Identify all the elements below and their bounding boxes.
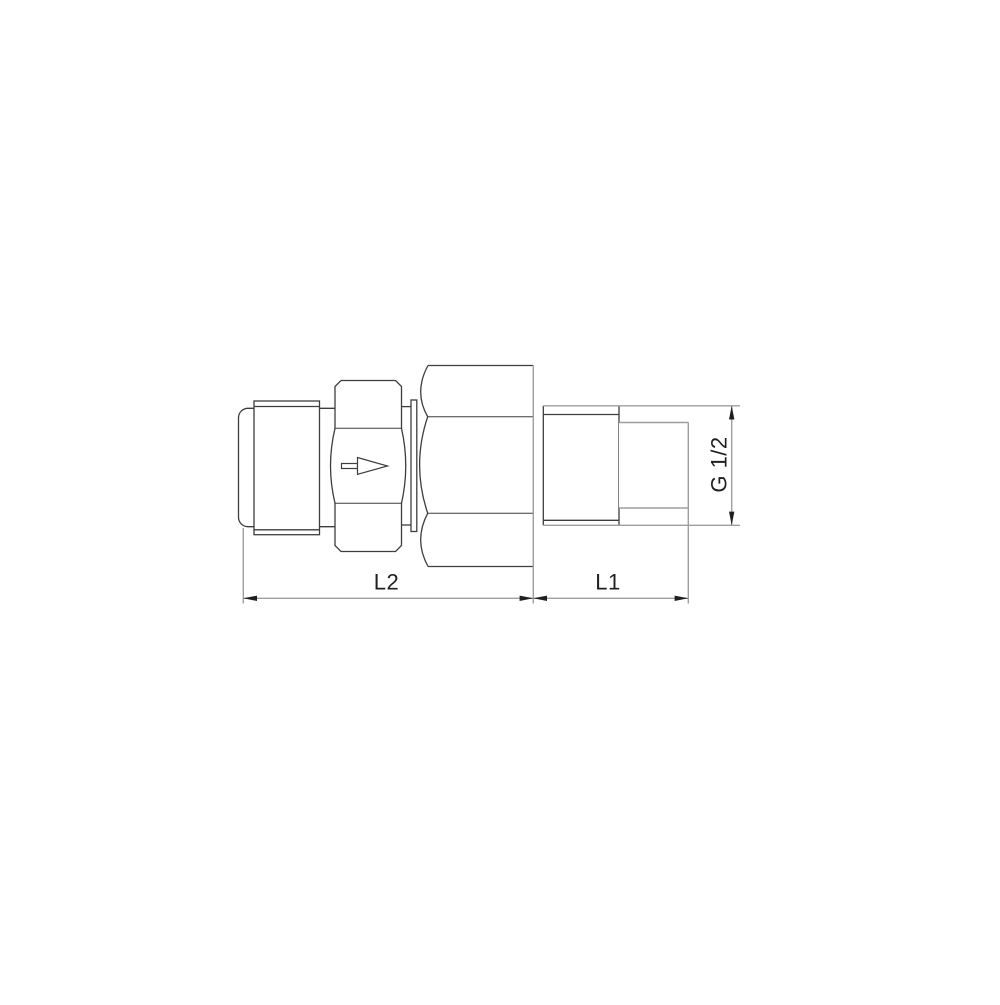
arrowhead-left (243, 596, 257, 601)
arrowhead-right (675, 596, 689, 601)
left-thread-section (254, 401, 336, 535)
valve-technical-drawing: L2 L1 G 1/2 (0, 0, 1000, 1000)
arrowhead-thread-top (729, 406, 734, 420)
clamp-ring (411, 400, 417, 532)
right-union-section (543, 406, 619, 526)
drawing-canvas: L2 L1 G 1/2 (0, 0, 1000, 1000)
dimension-label-l2: L2 (374, 570, 399, 595)
arrowhead-thread-bottom (729, 512, 734, 526)
arrowhead-middle-right (533, 596, 547, 601)
right-male-thread (619, 423, 688, 509)
dimension-label-thread-size: G 1/2 (707, 436, 732, 492)
valve-body-hex (420, 366, 534, 567)
dimension-label-l1: L1 (595, 570, 620, 595)
valve-outline (239, 366, 689, 567)
arrowhead-middle-left (520, 596, 534, 601)
